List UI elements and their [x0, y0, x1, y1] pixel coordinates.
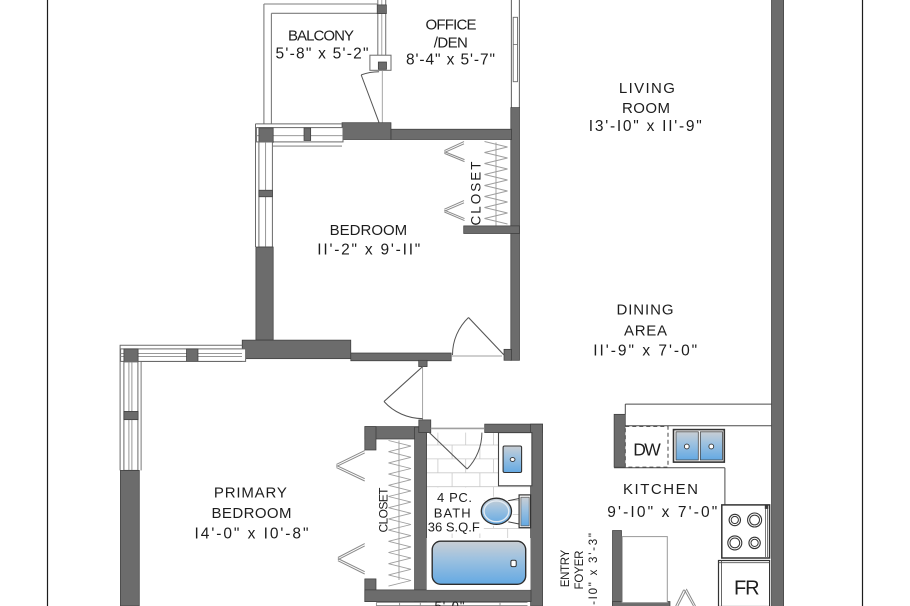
svg-text:36 S.Q.F: 36 S.Q.F [428, 519, 480, 534]
svg-text:PRIMARY: PRIMARY [214, 485, 287, 502]
svg-text:5'-0": 5'-0" [435, 599, 465, 606]
svg-text:4 PC.: 4 PC. [437, 490, 472, 505]
svg-text:FR: FR [734, 578, 760, 600]
svg-text:DINING: DINING [617, 302, 674, 319]
svg-text:8'-4" x 5'-7": 8'-4" x 5'-7" [406, 52, 495, 69]
svg-text:9'-I0" x 7'-0": 9'-I0" x 7'-0" [607, 504, 717, 521]
svg-text:CLOSET: CLOSET [377, 487, 391, 533]
svg-text:BEDROOM: BEDROOM [212, 505, 292, 522]
svg-text:FOYER: FOYER [574, 551, 586, 590]
svg-text:BALCONY: BALCONY [288, 28, 354, 45]
svg-text:OFFICE: OFFICE [426, 17, 477, 34]
svg-text:BEDROOM: BEDROOM [330, 222, 408, 239]
svg-text:5'-8" x 5'-2": 5'-8" x 5'-2" [276, 46, 369, 63]
svg-text:BATH: BATH [434, 505, 471, 520]
svg-text:ROOM: ROOM [622, 100, 670, 117]
svg-text:KITCHEN: KITCHEN [623, 481, 698, 498]
svg-text:DW: DW [633, 440, 661, 460]
svg-text:ENTRY: ENTRY [560, 549, 572, 587]
svg-text:/DEN: /DEN [434, 35, 468, 52]
svg-text:AREA: AREA [624, 322, 667, 339]
